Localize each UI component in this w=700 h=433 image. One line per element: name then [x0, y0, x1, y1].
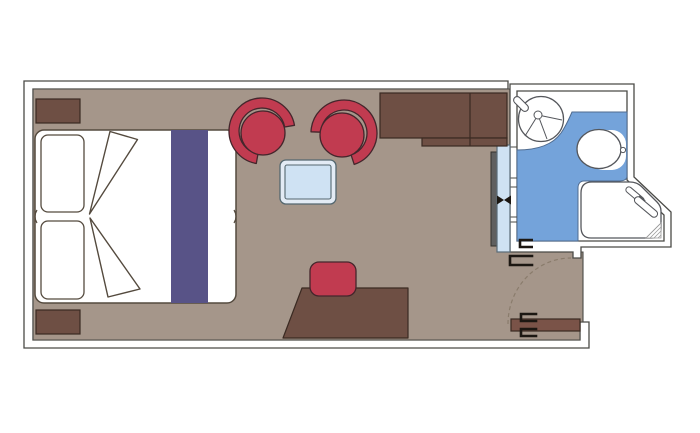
armchair-seat	[320, 113, 364, 157]
bed-runner	[171, 130, 208, 303]
nightstand-top	[36, 99, 80, 123]
nightstand-bottom	[36, 310, 80, 334]
floorplan-page	[0, 0, 700, 433]
cabinet-ledge	[422, 138, 507, 146]
floorplan-svg	[0, 0, 700, 433]
pillow-top	[41, 135, 84, 212]
slider-rail	[491, 152, 497, 246]
coffee-table	[280, 160, 336, 204]
flush-button	[620, 147, 625, 152]
vanity-cabinet	[380, 93, 507, 146]
toilet	[577, 130, 621, 169]
cabinet-body	[380, 93, 507, 138]
double-bed	[35, 130, 236, 303]
basin-drain	[534, 111, 542, 119]
stool	[310, 262, 356, 296]
wardrobe-slider	[491, 145, 511, 252]
armchair-seat	[241, 111, 285, 155]
pillow-bottom	[41, 221, 84, 299]
table-top	[285, 165, 331, 199]
